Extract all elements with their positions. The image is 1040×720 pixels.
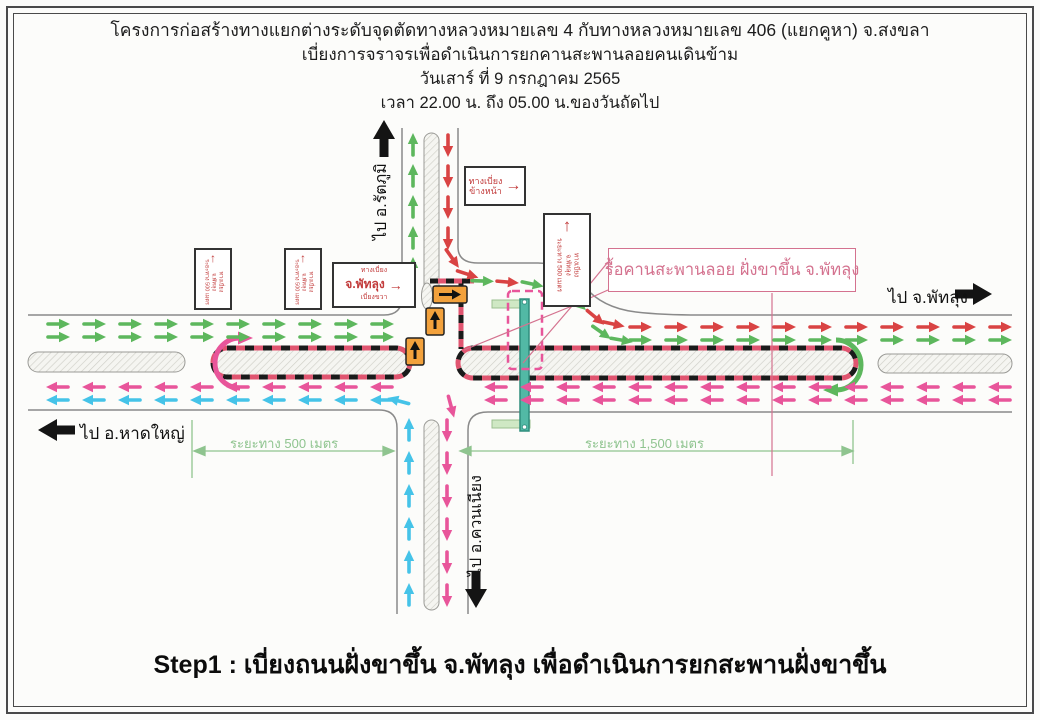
bridge-removal-callout: รื้อคานสะพานลอย ฝั่งขาขึ้น จ.พัทลุง	[608, 248, 856, 292]
label-east: ไป จ.พัทลุง	[888, 284, 968, 311]
dimension-right: ระยะทาง 1,500 เมตร	[585, 433, 704, 454]
intersection-diagram	[0, 0, 1040, 720]
west-median	[28, 352, 185, 372]
south-median	[424, 420, 439, 610]
right-arrow-icon: →	[505, 177, 521, 195]
label-north: ไป อ.รัตภูมิ	[369, 163, 394, 240]
north-median	[424, 133, 439, 295]
step-caption: Step1 : เบี่ยงถนนฝั่งขาขึ้น จ.พัทลุง เพื…	[0, 645, 1040, 685]
label-west: ไป อ.หาดใหญ่	[80, 420, 185, 447]
bridge-span	[520, 299, 529, 431]
sign-diversion-vertical-2: ↑ ทางเบี่ยง จ.พัทลุง ระยะทาง 500 เมตร	[194, 248, 232, 310]
bridge-stair-north	[492, 300, 520, 308]
traffic-island	[422, 283, 433, 309]
label-south: ไป อ.ควนเนียง	[464, 475, 489, 576]
sign-diversion-vertical-3: ↑ ทางเบี่ยง จ.พัทลุง ระยะทาง 500 เมตร	[284, 248, 322, 310]
dimension-left: ระยะทาง 500 เมตร	[230, 433, 338, 454]
north-arrow-icon	[373, 120, 395, 157]
west-arrow-icon	[38, 419, 75, 441]
sign-diversion-vertical-1: ↑ ทางเบี่ยง จ.พัทลุง ระยะทาง 500 เมตร	[543, 213, 591, 307]
traffic-diversion-plan-sheet: โครงการก่อสร้างทางแยกต่างระดับจุดตัดทางห…	[0, 0, 1040, 720]
east-median	[878, 354, 1012, 373]
up-arrow-icon: ↑	[545, 216, 589, 236]
sign-diversion-ahead: ทางเบี่ยง ข้างหน้า →	[464, 166, 526, 206]
sign-diversion-right: ทางเบี่ยง จ.พัทลุง → เบี่ยงขวา	[332, 262, 416, 308]
right-arrow-icon: →	[389, 277, 403, 293]
